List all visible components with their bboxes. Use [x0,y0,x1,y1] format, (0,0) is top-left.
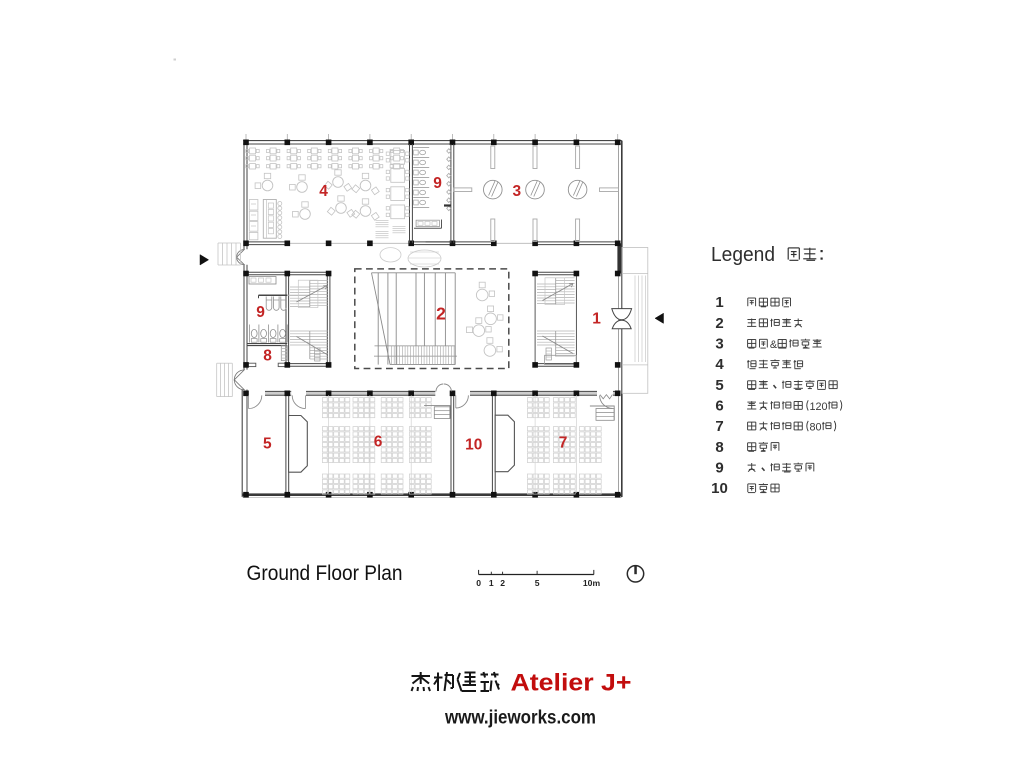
svg-text:9: 9 [256,304,265,321]
svg-text:8: 8 [715,439,723,456]
svg-text:10m: 10m [583,578,601,588]
svg-text:10: 10 [711,480,728,497]
svg-text:2: 2 [500,578,505,588]
svg-text:6: 6 [374,434,383,451]
svg-text:www.jieworks.com: www.jieworks.com [444,708,596,729]
svg-text:4: 4 [715,356,724,373]
svg-text:1: 1 [489,578,494,588]
svg-text:0: 0 [476,578,481,588]
svg-text:9: 9 [715,459,723,476]
svg-text:5: 5 [535,578,540,588]
svg-text:Atelier J+: Atelier J+ [511,670,632,697]
svg-text:2: 2 [436,304,446,324]
svg-text:Legend: Legend [711,243,775,266]
svg-text:7: 7 [715,418,723,435]
svg-text:6: 6 [715,397,723,414]
svg-text:7: 7 [559,434,568,451]
svg-text:10: 10 [465,437,482,454]
svg-text:120: 120 [810,401,828,413]
svg-text:4: 4 [319,183,328,200]
svg-text:&: & [770,339,778,351]
svg-text:5: 5 [715,377,723,394]
svg-text:2: 2 [715,315,723,332]
svg-text:1: 1 [715,294,723,311]
svg-text:5: 5 [263,435,272,452]
svg-text:1: 1 [592,310,601,327]
svg-text:8: 8 [263,348,272,365]
svg-text:Ground Floor Plan: Ground Floor Plan [247,561,403,585]
svg-text:3: 3 [512,183,521,200]
svg-text:9: 9 [433,175,442,192]
svg-text:3: 3 [715,336,723,353]
svg-text:80: 80 [810,422,822,434]
